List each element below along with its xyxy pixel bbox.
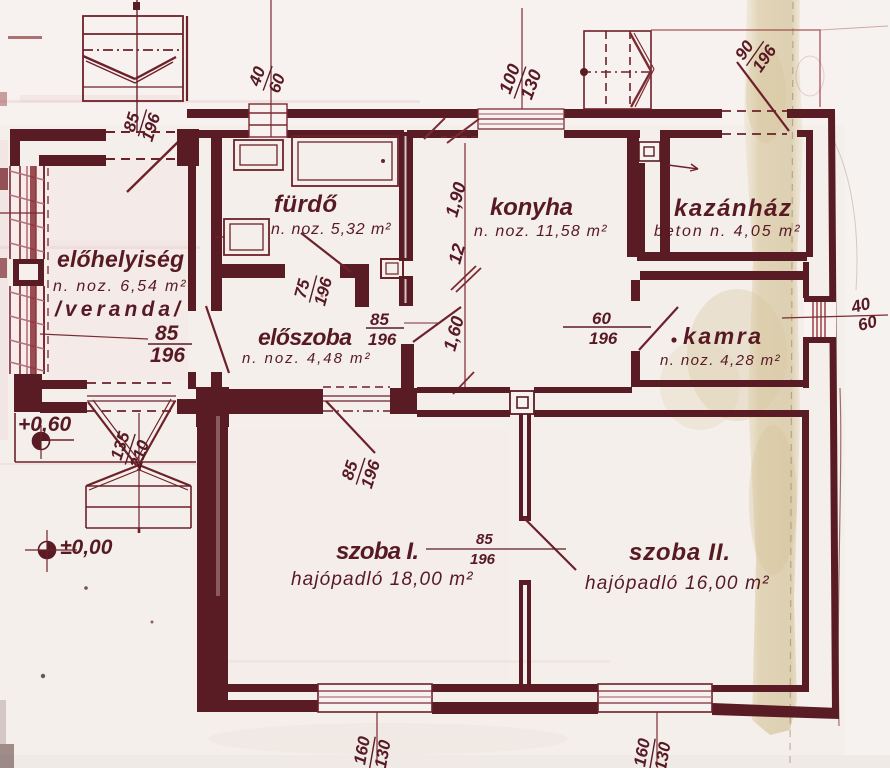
svg-text:kamra: kamra — [683, 323, 762, 349]
svg-text:hajópadló 18,00 m²: hajópadló 18,00 m² — [291, 569, 473, 590]
svg-text:/veranda/: /veranda/ — [54, 298, 182, 321]
svg-text:n. noz. 4,28 m²: n. noz. 4,28 m² — [660, 352, 781, 369]
svg-text:85: 85 — [370, 310, 389, 329]
svg-text:196: 196 — [589, 329, 618, 348]
svg-text:beton n. 4,05 m²: beton n. 4,05 m² — [654, 223, 800, 240]
svg-text:hajópadló 16,00 m²: hajópadló 16,00 m² — [585, 573, 769, 594]
svg-text:fürdő: fürdő — [274, 191, 338, 218]
svg-text:konyha: konyha — [490, 194, 574, 221]
svg-text:60: 60 — [592, 309, 611, 328]
svg-text:±0,00: ±0,00 — [60, 536, 113, 559]
svg-text:196: 196 — [150, 344, 185, 367]
svg-text:előszoba: előszoba — [258, 324, 353, 350]
svg-text:n. noz. 5,32 m²: n. noz. 5,32 m² — [271, 221, 391, 238]
svg-text:196: 196 — [368, 330, 397, 349]
svg-text:196: 196 — [470, 551, 496, 568]
svg-text:szoba I.: szoba I. — [336, 538, 420, 565]
svg-text:szoba II.: szoba II. — [629, 539, 731, 566]
svg-text:n. noz. 6,54 m²: n. noz. 6,54 m² — [53, 278, 186, 295]
svg-text:n. noz. 4,48 m²: n. noz. 4,48 m² — [242, 350, 371, 367]
svg-text:85: 85 — [476, 531, 493, 548]
svg-text:előhelyiség: előhelyiség — [57, 246, 185, 272]
svg-text:85: 85 — [155, 322, 179, 345]
svg-text:n. noz. 11,58 m²: n. noz. 11,58 m² — [474, 223, 607, 240]
svg-text:kazánház: kazánház — [674, 195, 792, 222]
